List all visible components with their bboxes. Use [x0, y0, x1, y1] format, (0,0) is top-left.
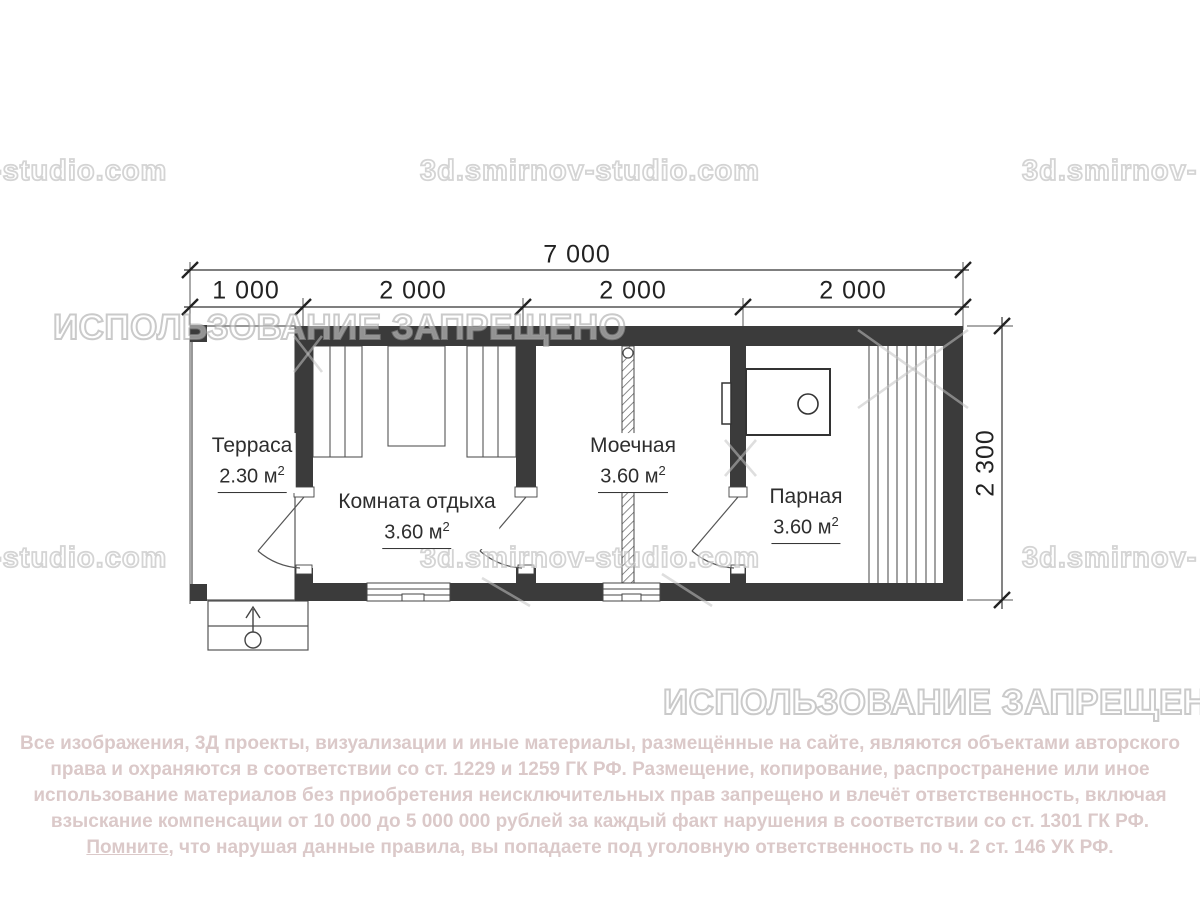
copyright-line: взыскание компенсации от 10 000 до 5 000…	[0, 809, 1200, 835]
copyright-line: Все изображения, 3Д проекты, визуализаци…	[0, 731, 1200, 757]
dim-seg-rest: 2 000	[379, 277, 447, 306]
copyright-line: Помните, что нарушая данные правила, вы …	[0, 835, 1200, 861]
room-name: Парная	[769, 484, 842, 510]
room-label-terrace: Терраса 2.30 м2	[209, 433, 296, 493]
entrance-steps	[208, 601, 308, 650]
watermark-site-mid-right: 3d.smirnov-	[1022, 542, 1197, 575]
room-label-steam: Парная 3.60 м2	[766, 484, 845, 544]
copyright-line: использование материалов без приобретени…	[0, 783, 1200, 809]
window-wash-room	[603, 583, 660, 601]
watermark-prohibited-bottom: ИСПОЛЬЗОВАНИЕ ЗАПРЕЩЕНО	[663, 683, 1200, 723]
room-name: Комната отдыха	[338, 489, 496, 515]
window-rest-room	[367, 583, 450, 601]
watermark-site-top-left: -studio.com	[0, 155, 167, 188]
room-area: 2.30 м2	[217, 462, 286, 493]
entrance-arrow-icon	[245, 607, 261, 648]
room-name: Моечная	[590, 433, 676, 459]
room-area: 3.60 м2	[771, 513, 840, 544]
dim-seg-wash: 2 000	[599, 277, 667, 306]
watermark-site-mid-left: -studio.com	[0, 542, 167, 575]
room-label-rest: Комната отдыха 3.60 м2	[335, 489, 499, 549]
watermark-prohibited-top: ИСПОЛЬЗОВАНИЕ ЗАПРЕЩЕНО	[53, 308, 626, 348]
room-name: Терраса	[212, 433, 293, 459]
dim-height: 2 300	[972, 429, 1001, 497]
door-terrace-rest	[258, 497, 304, 568]
stove-icon	[746, 369, 830, 435]
watermark-site-top-center: 3d.smirnov-studio.com	[420, 155, 760, 188]
floor-plan-page: -studio.com 3d.smirnov-studio.com 3d.smi…	[0, 0, 1200, 900]
watermark-site-top-right: 3d.smirnov-	[1022, 155, 1197, 188]
room-area: 3.60 м2	[598, 462, 667, 493]
firebox-icon	[722, 383, 731, 424]
copyright-line: права и охраняются в соответствии со ст.…	[0, 757, 1200, 783]
copyright-notice: Все изображения, 3Д проекты, визуализаци…	[0, 731, 1200, 861]
dim-seg-terrace: 1 000	[212, 277, 280, 306]
dim-total-width: 7 000	[543, 241, 611, 270]
room-area: 3.60 м2	[382, 518, 451, 549]
room-label-wash: Моечная 3.60 м2	[587, 433, 679, 493]
dim-seg-steam: 2 000	[819, 277, 887, 306]
steam-room-benches	[869, 346, 935, 583]
rest-room-benches	[313, 346, 516, 457]
